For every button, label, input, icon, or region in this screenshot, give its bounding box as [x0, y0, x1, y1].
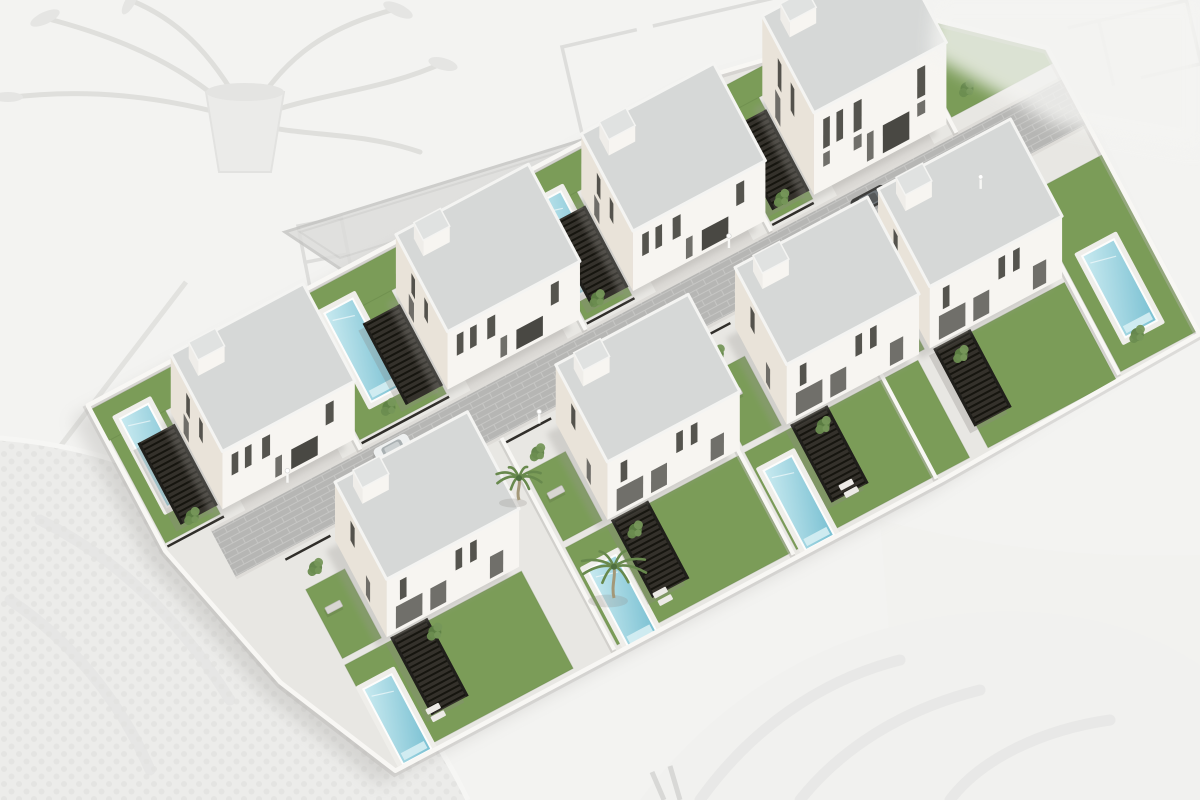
plant-pot — [206, 92, 284, 172]
rendering-canvas — [0, 0, 1200, 800]
architectural-rendering — [0, 0, 1200, 800]
